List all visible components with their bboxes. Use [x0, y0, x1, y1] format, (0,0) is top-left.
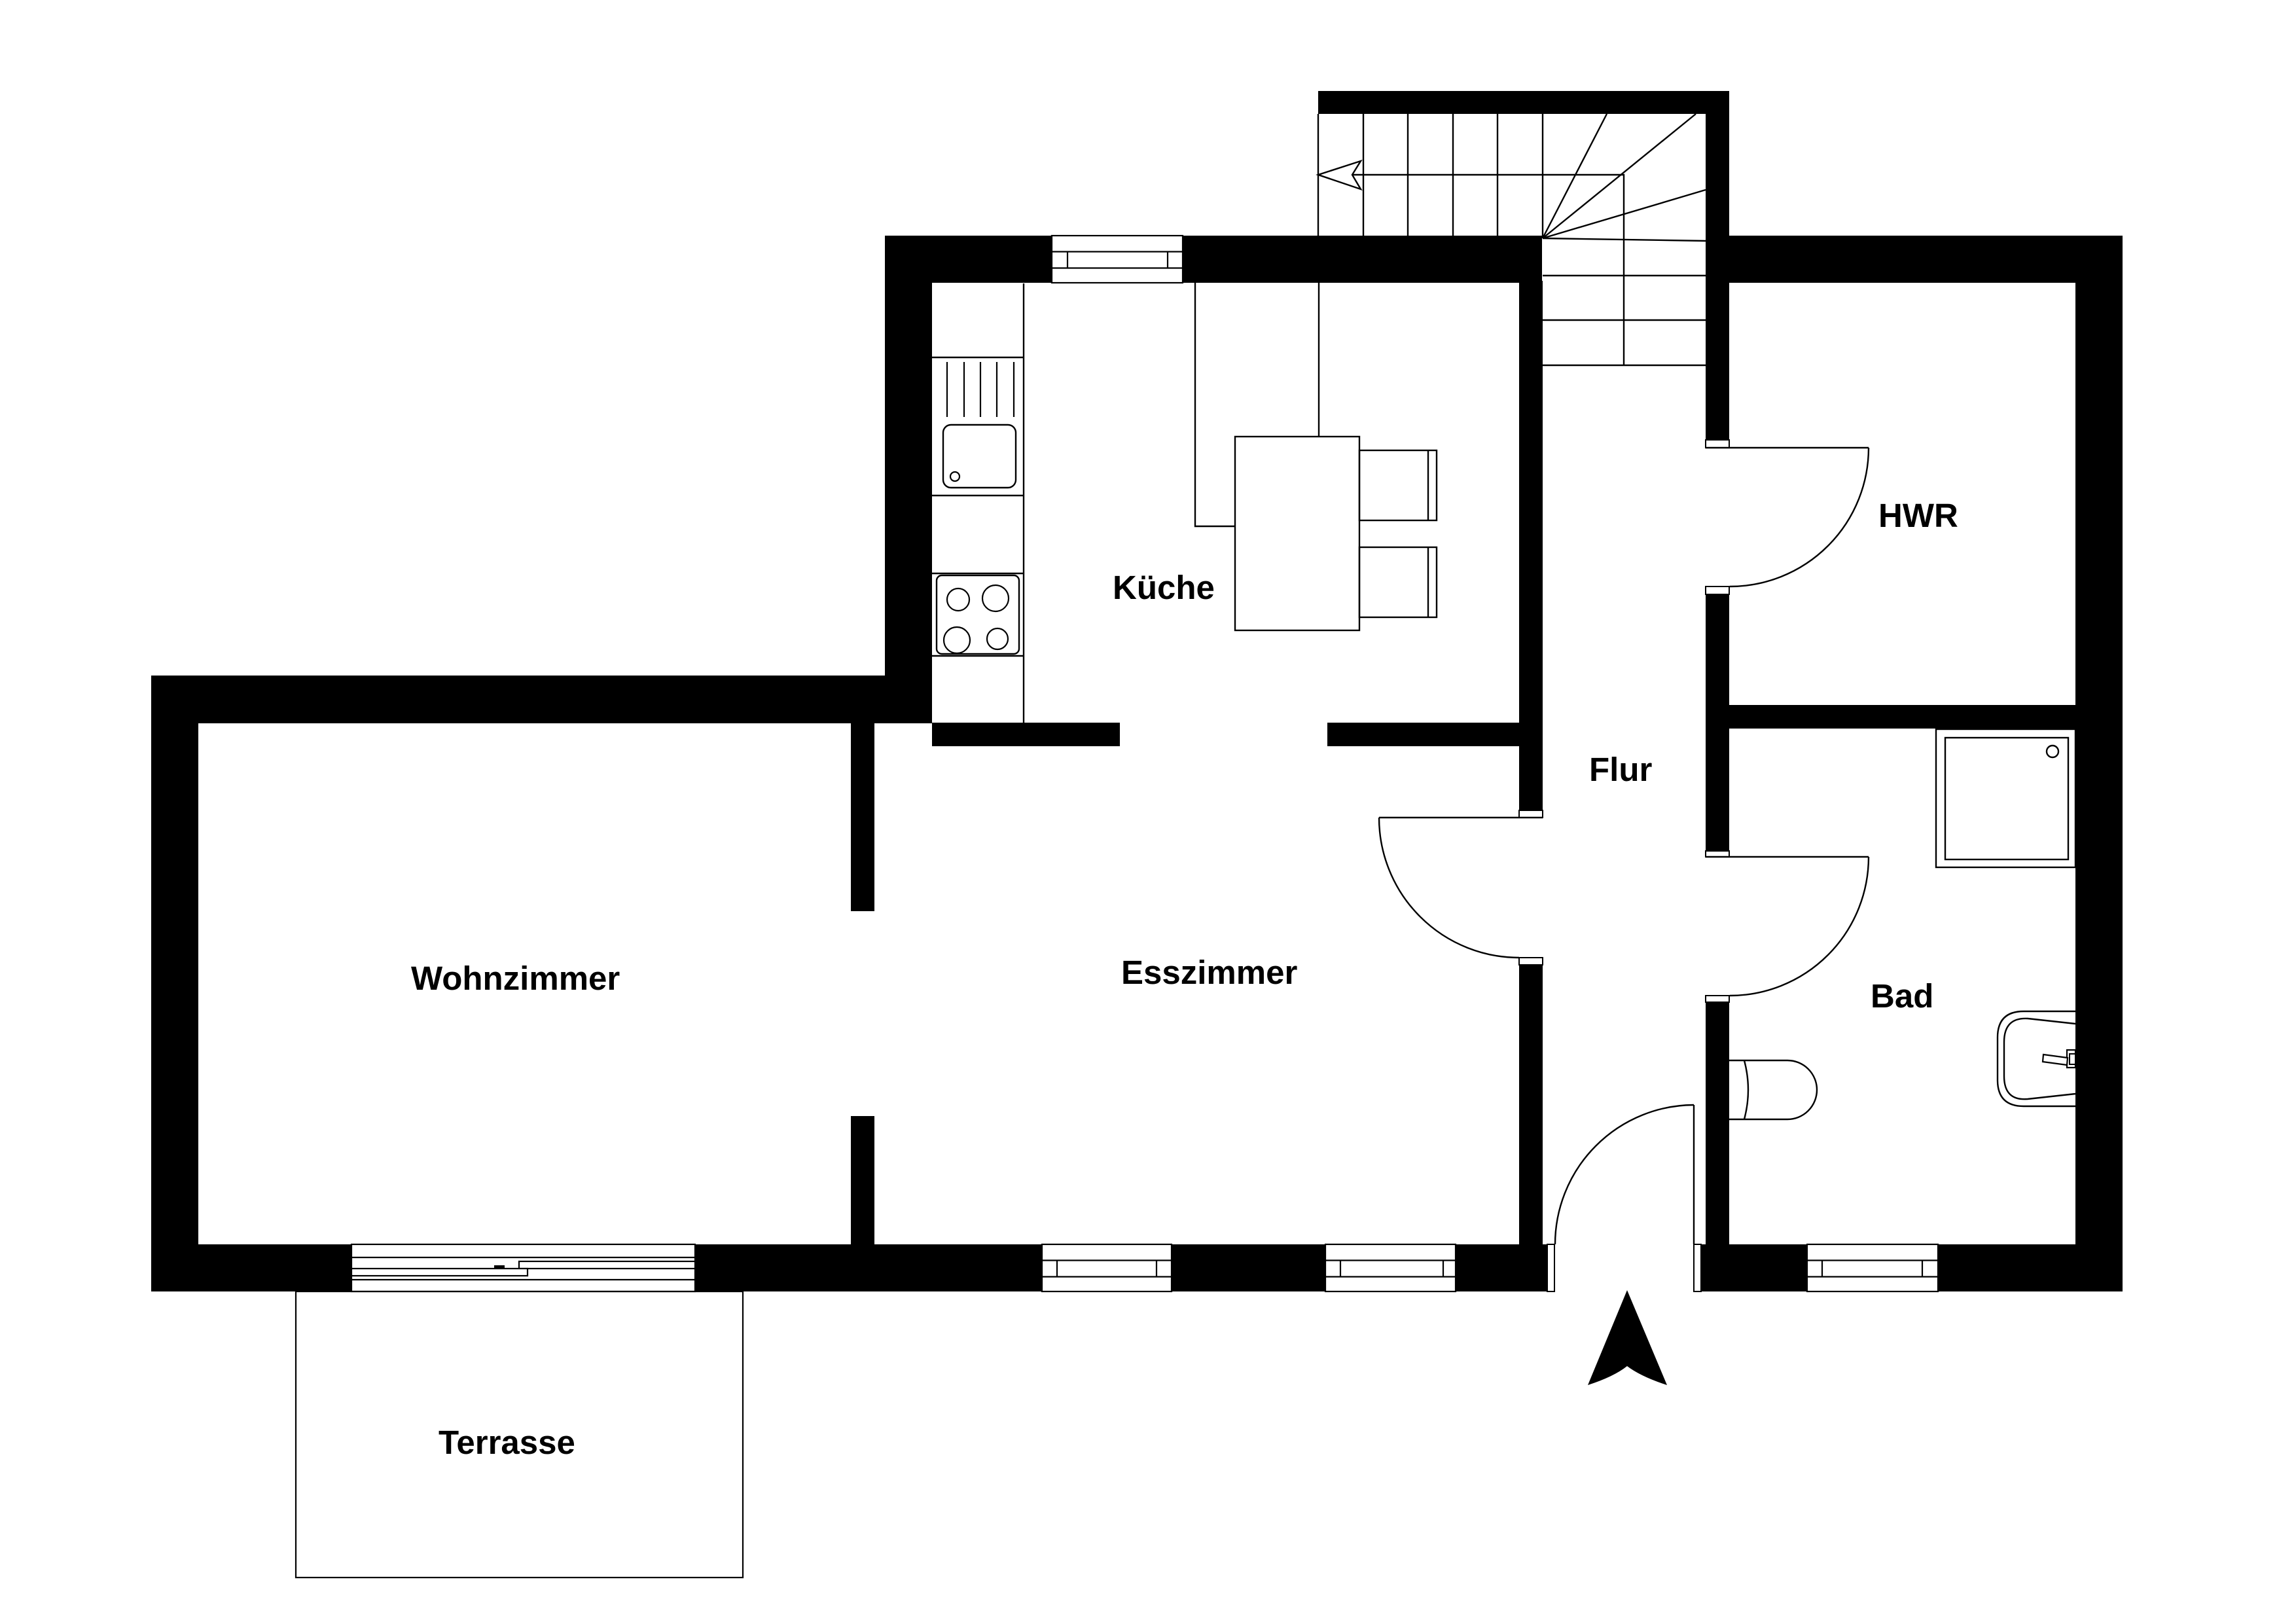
- svg-text:Bad: Bad: [1871, 977, 1933, 1015]
- svg-text:Küche: Küche: [1113, 569, 1215, 606]
- svg-text:HWR: HWR: [1878, 497, 1958, 534]
- svg-text:Esszimmer: Esszimmer: [1121, 954, 1297, 991]
- svg-text:Terrasse: Terrasse: [439, 1424, 575, 1461]
- svg-text:Wohnzimmer: Wohnzimmer: [411, 960, 620, 997]
- svg-text:Flur: Flur: [1589, 751, 1652, 788]
